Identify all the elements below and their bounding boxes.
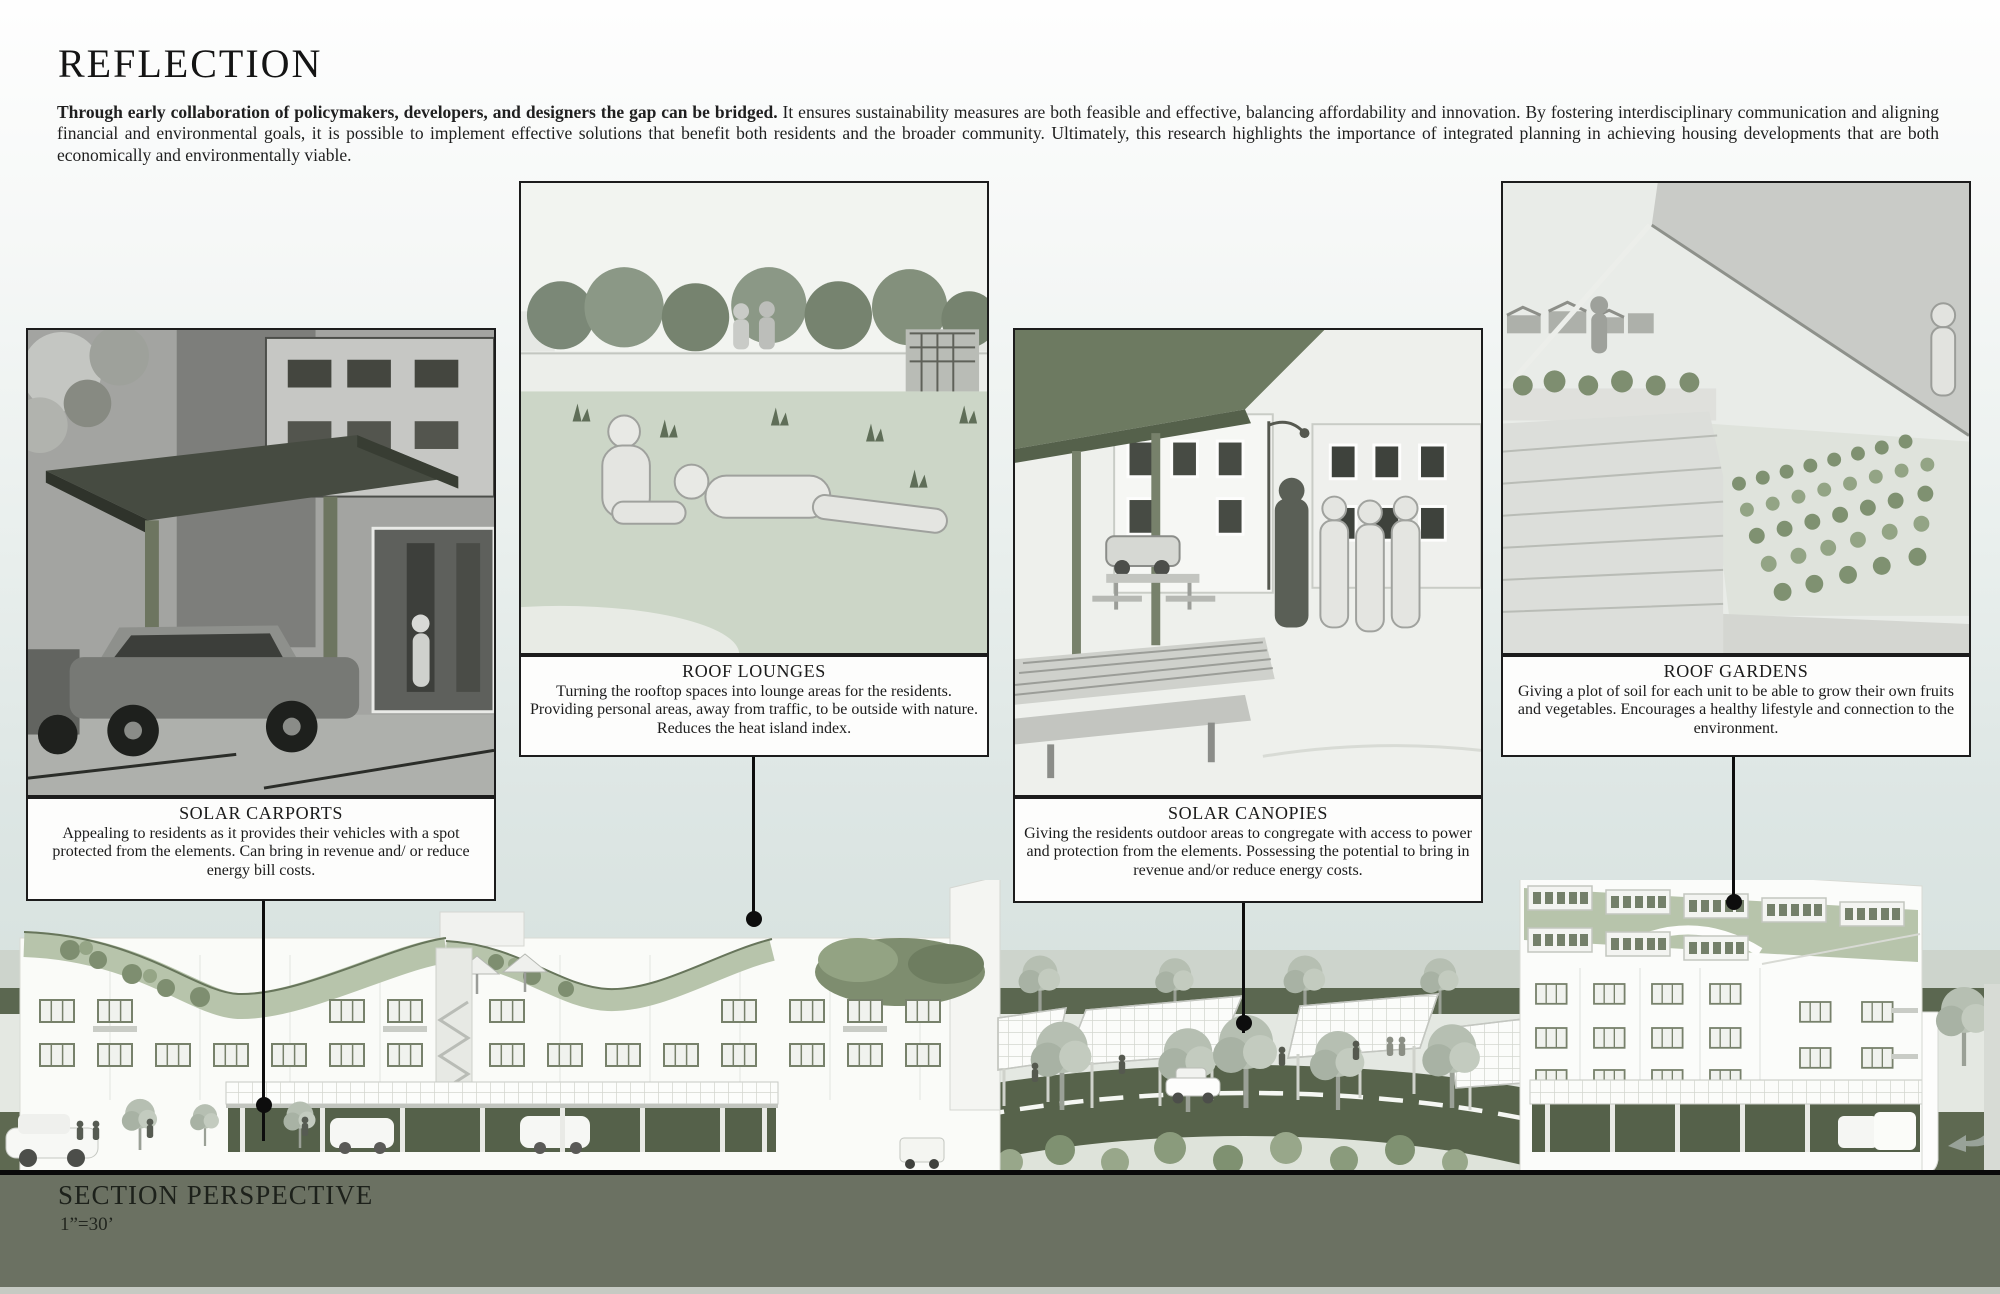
intro-bold-lead: Through early collaboration of policymak… [57, 102, 778, 122]
caption-title: SOLAR CARPORTS [34, 802, 488, 825]
leader-dot-solar-carports [256, 1097, 272, 1113]
leader-line-solar-canopies [1242, 903, 1245, 1033]
intro-paragraph: Through early collaboration of policymak… [57, 102, 1939, 166]
section-scale: 1”=30’ [60, 1214, 114, 1236]
caption-title: ROOF GARDENS [1509, 660, 1963, 683]
roof-gardens-image [1501, 181, 1971, 655]
section-perspective-illustration [0, 880, 2000, 1294]
leader-dot-roof-gardens [1726, 894, 1742, 910]
solar-carports-illustration [28, 330, 494, 795]
leader-line-roof-lounges [752, 757, 755, 925]
leader-dot-solar-canopies [1236, 1015, 1252, 1031]
caption-title: ROOF LOUNGES [527, 660, 981, 683]
caption-title: SOLAR CANOPIES [1021, 802, 1475, 825]
caption-body: Giving the residents outdoor areas to co… [1021, 825, 1475, 882]
caption-body: Appealing to residents as it provides th… [34, 825, 488, 882]
roof-lounges-image [519, 181, 989, 655]
right-building [1520, 880, 2000, 1174]
presentation-board: REFLECTION Through early collaboration o… [0, 0, 2000, 1294]
leader-line-roof-gardens [1732, 757, 1735, 908]
roof-gardens-caption: ROOF GARDENS Giving a plot of soil for e… [1501, 655, 1971, 757]
roof-lounges-illustration [521, 183, 987, 653]
caption-body: Turning the rooftop spaces into lounge a… [527, 683, 981, 740]
page-title: REFLECTION [58, 40, 322, 87]
solar-canopies-image [1013, 328, 1483, 797]
roof-gardens-illustration [1503, 183, 1969, 653]
leader-dot-roof-lounges [746, 911, 762, 927]
caption-body: Giving a plot of soil for each unit to b… [1509, 683, 1963, 740]
left-building [6, 880, 1000, 1174]
section-label: SECTION PERSPECTIVE [58, 1180, 373, 1211]
solar-carports-image [26, 328, 496, 797]
solar-canopies-illustration [1015, 330, 1481, 795]
roof-lounges-caption: ROOF LOUNGES Turning the rooftop spaces … [519, 655, 989, 757]
